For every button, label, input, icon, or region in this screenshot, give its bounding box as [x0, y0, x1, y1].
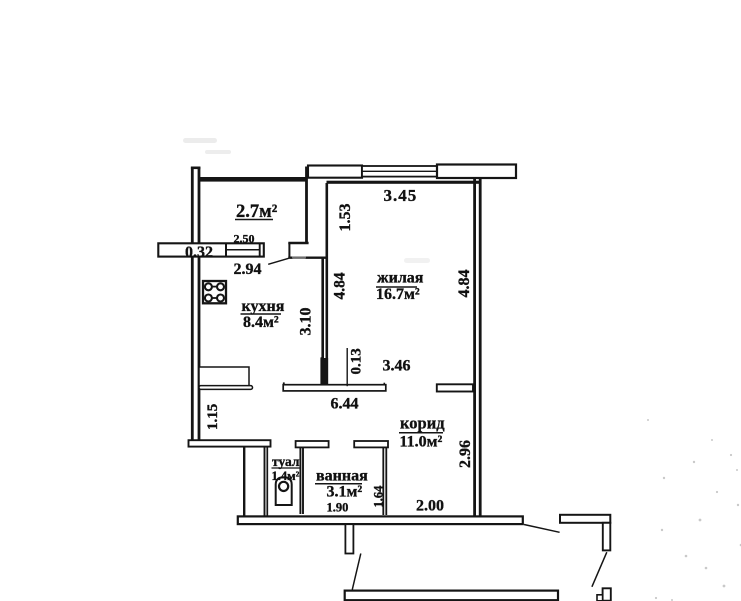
svg-text:8.4м²: 8.4м²	[243, 314, 279, 331]
svg-text:3.45: 3.45	[384, 186, 418, 205]
svg-text:жилая: жилая	[377, 270, 424, 287]
svg-text:ванная: ванная	[316, 468, 368, 485]
svg-text:6.44: 6.44	[331, 395, 359, 412]
svg-text:корид: корид	[400, 414, 445, 433]
svg-text:кухня: кухня	[242, 298, 285, 315]
svg-text:2.94: 2.94	[234, 261, 262, 278]
svg-text:3.1м²: 3.1м²	[327, 484, 363, 501]
svg-text:1.64: 1.64	[372, 485, 386, 508]
svg-text:16.7м²: 16.7м²	[376, 286, 420, 303]
svg-text:2.00: 2.00	[416, 498, 444, 515]
svg-text:1.90: 1.90	[327, 500, 349, 514]
svg-text:2.50: 2.50	[234, 231, 255, 245]
svg-text:туал: туал	[272, 454, 300, 469]
svg-text:1.53: 1.53	[337, 204, 354, 232]
svg-text:0.13: 0.13	[349, 348, 365, 374]
svg-text:2.96: 2.96	[457, 440, 474, 468]
svg-text:4.84: 4.84	[332, 272, 349, 299]
svg-text:11.0м²: 11.0м²	[400, 434, 443, 451]
svg-text:1.4м²: 1.4м²	[272, 469, 300, 483]
svg-text:3.46: 3.46	[383, 358, 411, 375]
svg-text:0.32: 0.32	[185, 244, 213, 261]
svg-text:1.15: 1.15	[205, 404, 221, 430]
svg-text:4.84: 4.84	[456, 270, 473, 298]
svg-text:3.10: 3.10	[298, 308, 315, 336]
